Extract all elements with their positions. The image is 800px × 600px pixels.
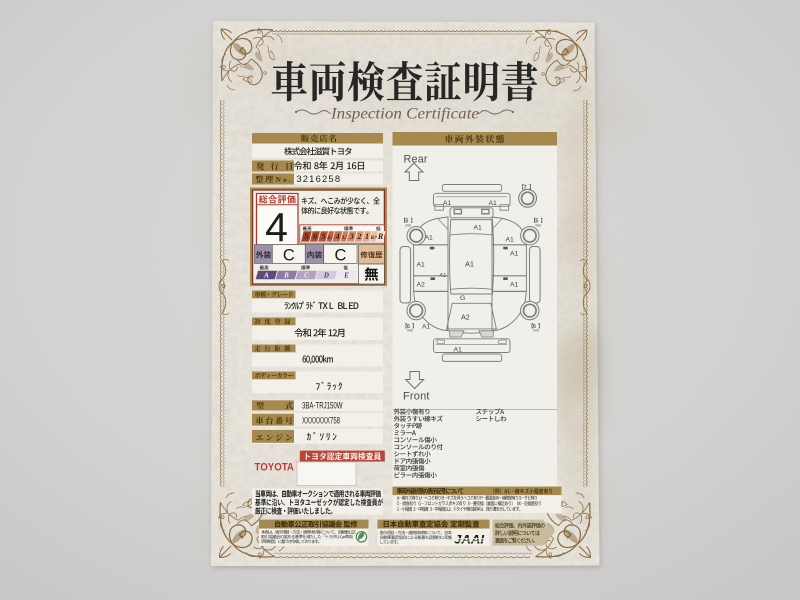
svg-text:A1: A1: [510, 282, 519, 289]
svg-text:JAAI: JAAI: [454, 533, 485, 547]
svg-text:A1: A1: [489, 200, 498, 207]
svg-text:mm: mm: [407, 329, 413, 333]
svg-text:4: 4: [265, 205, 288, 251]
svg-text:mm: mm: [406, 223, 412, 227]
svg-text:Rear: Rear: [404, 154, 428, 166]
svg-text:C: C: [304, 271, 309, 279]
svg-text:2: 2: [357, 232, 362, 241]
svg-text:G: G: [460, 295, 465, 302]
svg-text:A1: A1: [474, 225, 483, 232]
svg-text:S: S: [304, 232, 309, 241]
svg-text:mm: mm: [533, 329, 539, 333]
svg-text:A1: A1: [510, 250, 519, 257]
svg-text:3BA-TRJ150W: 3BA-TRJ150W: [302, 400, 343, 410]
svg-text:XXXXXXX758: XXXXXXX758: [302, 415, 340, 425]
svg-text:No.: No.: [276, 175, 293, 184]
svg-text:Inspection Certificate: Inspection Certificate: [330, 106, 479, 123]
svg-text:1: 1: [365, 232, 369, 241]
svg-text:A1: A1: [443, 200, 452, 207]
svg-text:A1: A1: [417, 261, 426, 268]
svg-text:A1: A1: [506, 236, 515, 243]
svg-text:A1: A1: [422, 323, 431, 330]
svg-text:mm: mm: [536, 223, 542, 227]
svg-text:3216258: 3216258: [296, 173, 341, 184]
svg-text:A1: A1: [454, 346, 463, 353]
svg-text:C: C: [283, 246, 295, 264]
svg-text:5: 5: [321, 232, 325, 241]
svg-text:3: 3: [349, 232, 354, 241]
svg-text:A1: A1: [465, 260, 474, 269]
svg-text:E: E: [343, 271, 349, 279]
svg-text:TOYOTA: TOYOTA: [255, 461, 294, 473]
svg-text:D: D: [323, 271, 329, 279]
svg-text:A: A: [263, 271, 269, 279]
svg-text:C: C: [334, 246, 346, 264]
svg-text:A2: A2: [461, 313, 470, 322]
svg-text:A2: A2: [417, 282, 426, 289]
svg-text:Front: Front: [403, 391, 430, 403]
svg-text:4: 4: [335, 232, 340, 241]
svg-text:B: B: [283, 271, 289, 279]
